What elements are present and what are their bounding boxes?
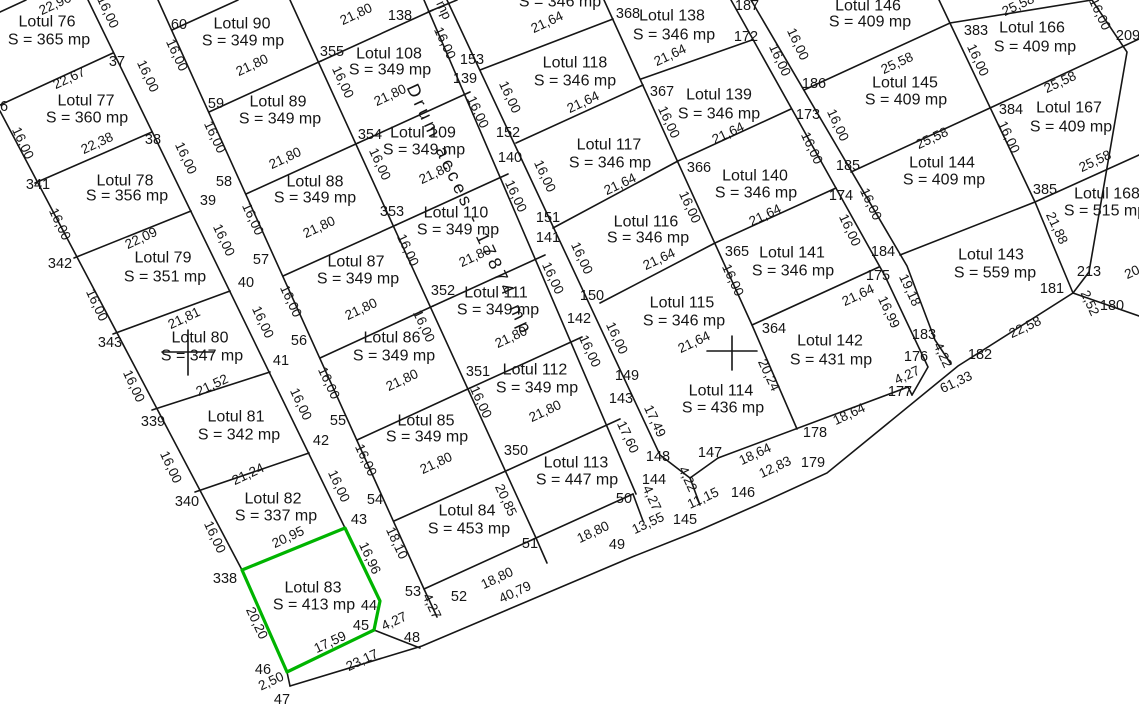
lot-name: Lotul 80 <box>172 330 229 347</box>
lot-area: S = 346 mp <box>752 263 834 280</box>
lot-area: S = 409 mp <box>1030 119 1112 136</box>
edge-length-label: 21,64 <box>747 201 784 229</box>
survey-point-number: 54 <box>367 492 383 508</box>
survey-point-number: 366 <box>687 160 711 176</box>
survey-point-number: 56 <box>291 333 307 349</box>
lot-area: S = 349 mp <box>496 380 578 397</box>
survey-point-number: 174 <box>829 188 853 204</box>
lot-area: S = 365 mp <box>8 32 90 49</box>
survey-point-number: 180 <box>1100 298 1124 314</box>
lot-area: S = 349 mp <box>386 429 468 446</box>
survey-point-number: 209 <box>1116 28 1139 44</box>
survey-point-number: 48 <box>404 630 420 646</box>
edge-length-label: 16,00 <box>325 468 353 505</box>
survey-point-number: 39 <box>200 193 216 209</box>
survey-point-number: 182 <box>968 347 992 363</box>
survey-point-number: 139 <box>453 71 477 87</box>
edge-length-label: 21,80 <box>234 51 271 79</box>
crosshair-icon <box>707 336 757 370</box>
survey-point-number: 47 <box>274 692 290 708</box>
lot-area: S = 349 mp <box>417 222 499 239</box>
lot-name: Lotul 117 <box>577 137 642 154</box>
lot-area: S = 356 mp <box>86 188 168 205</box>
survey-point-number: 364 <box>762 321 786 337</box>
survey-point-number: 185 <box>836 158 860 174</box>
edge-length-label: 21,64 <box>602 170 639 198</box>
edge-length-label: 20,85 <box>492 482 520 519</box>
survey-point-number: 42 <box>313 433 329 449</box>
survey-point-number: 153 <box>460 52 484 68</box>
edge-length-label: 16,00 <box>603 320 631 357</box>
edge-length-label: 16,00 <box>431 25 459 62</box>
survey-point-number: 146 <box>731 485 755 501</box>
lot-name: Lotul 140 <box>722 168 788 185</box>
edge-length-label: 16,00 <box>1086 0 1114 32</box>
edge-length-label: 16,00 <box>719 262 747 299</box>
partial-lot-area-label: S = 346 mp <box>519 0 601 11</box>
lot-area: S = 342 mp <box>198 427 280 444</box>
edge-length-label: 16,00 <box>857 186 885 223</box>
lot-area: S = 349 mp <box>202 33 284 50</box>
lot-name: Lotul 88 <box>287 174 344 191</box>
survey-point-number: 172 <box>734 29 758 45</box>
edge-length-label: 17,49 <box>641 403 669 440</box>
edge-length-label: 16,00 <box>46 206 74 243</box>
edge-length-label: 21,80 <box>301 213 338 241</box>
edge-length-label: 16,00 <box>172 140 200 177</box>
lot-area: S = 447 mp <box>536 472 618 489</box>
lot-area: S = 346 mp <box>678 106 760 123</box>
lot-name: Lotul 109 <box>390 125 456 142</box>
lot-name: Lotul 116 <box>614 214 679 231</box>
lot-name: Lotul 82 <box>245 491 302 508</box>
edge-length-label: 22,09 <box>123 224 160 252</box>
edge-length-label: 21,64 <box>641 245 678 273</box>
edge-length-label: 16,00 <box>277 283 305 320</box>
survey-point-number: 383 <box>964 23 988 39</box>
cadastral-plan: Drum acces - 17874 mp S = 346 mp Lotul 7… <box>0 0 1139 720</box>
lot-area: S = 349 mp <box>239 111 321 128</box>
lot-area: S = 347 mp <box>161 348 243 365</box>
lot-area: S = 515 mp <box>1064 203 1139 220</box>
lot-name: Lotul 89 <box>250 94 307 111</box>
lot-area: S = 346 mp <box>569 155 651 172</box>
edge-length-label: 18,64 <box>831 400 868 428</box>
lot-name: Lotul 145 <box>872 75 938 92</box>
selected-lot-name: Lotul 83 <box>285 580 342 597</box>
survey-point-number: 343 <box>98 335 122 351</box>
lot-name: Lotul 166 <box>999 20 1065 37</box>
lot-area: S = 409 mp <box>829 14 911 31</box>
edge-length-label: 21,64 <box>840 281 877 309</box>
survey-point-number: 342 <box>48 256 72 272</box>
lot-name: Lotul 113 <box>544 455 609 472</box>
edge-length-label: 16,00 <box>210 222 238 259</box>
edge-length-label: 19,18 <box>896 272 924 309</box>
survey-point-number: 55 <box>330 413 346 429</box>
survey-point-number: 365 <box>725 244 749 260</box>
edge-length-label: 23,17 <box>344 646 381 674</box>
survey-point-number: 384 <box>999 102 1023 118</box>
lot-area: S = 409 mp <box>865 92 947 109</box>
edge-length-label: 21,64 <box>710 119 747 147</box>
edge-length-label: 13,55 <box>630 509 667 537</box>
lot-name: Lotul 139 <box>686 87 752 104</box>
edge-length-label: 4,22 <box>676 464 701 494</box>
lot-area: S = 337 mp <box>235 508 317 525</box>
survey-point-number: 350 <box>504 443 528 459</box>
survey-point-number: 45 <box>353 618 369 634</box>
lot-area: S = 409 mp <box>903 172 985 189</box>
edge-length-label: 21,80 <box>527 397 564 425</box>
edge-length-label: 16,00 <box>83 287 111 324</box>
lot-area: S = 346 mp <box>607 230 689 247</box>
lot-area: S = 349 mp <box>353 348 435 365</box>
lot-area: S = 360 mp <box>46 110 128 127</box>
survey-point-number: 179 <box>801 455 825 471</box>
survey-point-number: 367 <box>650 84 674 100</box>
survey-point-number: 181 <box>1040 281 1064 297</box>
survey-point-number: 49 <box>609 537 625 553</box>
survey-point-number: 183 <box>912 327 936 343</box>
lot-name: Lotul 87 <box>328 254 385 271</box>
lot-name: Lotul 79 <box>135 250 192 267</box>
lot-name: Lotul 108 <box>356 46 422 63</box>
survey-point-number: 352 <box>431 283 455 299</box>
lot-name: Lotul 111 <box>464 285 528 302</box>
survey-point-number: 57 <box>253 252 269 268</box>
lot-area: S = 436 mp <box>682 400 764 417</box>
cadastral-plan-svg: Drum acces - 17874 mp S = 346 mp Lotul 7… <box>0 0 1139 720</box>
lot-area: S = 559 mp <box>954 265 1036 282</box>
edge-length-label: 21,80 <box>418 449 455 477</box>
survey-point-number: 353 <box>380 204 404 220</box>
survey-point-number: 368 <box>616 6 640 22</box>
lot-area: S = 349 mp <box>457 302 539 319</box>
lot-area: S = 349 mp <box>274 190 356 207</box>
survey-point-number: 143 <box>609 391 633 407</box>
lot-name: Lotul 141 <box>759 245 825 262</box>
survey-point-number: 186 <box>802 76 826 92</box>
survey-point-number: 43 <box>351 512 367 528</box>
survey-point-number: 142 <box>567 311 591 327</box>
edge-length-label: 20 <box>1122 262 1139 282</box>
edge-length-label: 25,58 <box>914 124 951 152</box>
edge-length-label: 16,00 <box>784 26 812 63</box>
lot-area: S = 346 mp <box>534 73 616 90</box>
edge-length-label: 16,99 <box>875 294 903 331</box>
edge-length-label: 25,58 <box>1077 147 1114 175</box>
survey-point-number: 58 <box>216 174 232 190</box>
survey-point-number: 145 <box>673 512 697 528</box>
edge-length-label: 21,64 <box>529 8 566 36</box>
edge-length-label: 16,00 <box>824 107 852 144</box>
edge-length-label: 21,24 <box>230 460 267 488</box>
survey-point-number: 147 <box>698 445 722 461</box>
edge-length-label: 16,00 <box>201 119 229 156</box>
lot-area: S = 349 mp <box>317 271 399 288</box>
edge-length-label: 16,00 <box>352 442 380 479</box>
edge-length-label: 16,00 <box>120 368 148 405</box>
edge-length-label: 17,60 <box>614 419 642 456</box>
edge-length-label: 16,00 <box>995 119 1023 156</box>
survey-point-number: 176 <box>904 349 928 365</box>
survey-point-number: 340 <box>175 494 199 510</box>
edge-length-label: 21,52 <box>194 371 231 399</box>
edge-length-label: 21,80 <box>384 366 421 394</box>
edge-length-label: 16,00 <box>568 240 596 277</box>
survey-point-number: 184 <box>871 244 895 260</box>
edge-length-label: 21,80 <box>343 295 380 323</box>
edge-length-label: 16,00 <box>496 79 524 116</box>
lot-area: S = 431 mp <box>790 352 872 369</box>
edge-length-label: 16,00 <box>94 0 122 30</box>
lot-name: Lotul 76 <box>19 14 76 31</box>
edge-length-label: 22,38 <box>79 129 116 157</box>
lot-name: Lotul 90 <box>214 16 271 33</box>
lot-area: S = 346 mp <box>633 27 715 44</box>
edge-length-label: 21,80 <box>493 323 530 351</box>
edge-length-label: 16,00 <box>163 37 191 74</box>
edge-length-label: 16,00 <box>676 189 704 226</box>
lot-name: Lotul 146 <box>835 0 901 15</box>
lot-name: Lotul 168 <box>1074 186 1139 203</box>
survey-point-number: 339 <box>141 414 165 430</box>
lot-name: Lotul 86 <box>364 330 421 347</box>
survey-point-number: 41 <box>273 353 289 369</box>
survey-point-number: 213 <box>1077 264 1101 280</box>
edge-length-label: 16,00 <box>502 178 530 215</box>
lot-name: Lotul 114 <box>689 383 754 400</box>
survey-point-number: 351 <box>466 364 490 380</box>
edge-length-label: 16,00 <box>766 42 794 79</box>
lot-area: S = 346 mp <box>643 313 725 330</box>
selected-lot-area: S = 413 mp <box>273 597 355 614</box>
edge-length-label: 61,33 <box>938 368 975 396</box>
edge-length-label: 21,80 <box>267 144 304 172</box>
lot-name: Lotul 138 <box>639 8 705 25</box>
survey-point-number: 355 <box>320 44 344 60</box>
survey-point-number: 341 <box>26 177 50 193</box>
edge-length-label: 25,58 <box>1042 68 1079 96</box>
survey-point-number: 140 <box>498 150 522 166</box>
lot-name: Lotul 115 <box>650 295 715 312</box>
survey-point-number: 40 <box>238 275 254 291</box>
lot-name: Lotul 77 <box>58 93 115 110</box>
lot-area: S = 351 mp <box>124 269 206 286</box>
survey-point-number: 38 <box>145 132 161 148</box>
edge-length-label: 22,67 <box>51 64 88 92</box>
edge-length-label: 16,00 <box>9 125 37 162</box>
lot-area: S = 409 mp <box>994 39 1076 56</box>
edge-length-label: 21,80 <box>338 0 375 28</box>
survey-point-number: 338 <box>213 571 237 587</box>
edge-length-label: 4,27 <box>420 591 445 621</box>
lot-area: S = 349 mp <box>349 62 431 79</box>
survey-point-number: 141 <box>536 230 560 246</box>
survey-point-number: 6 <box>0 99 8 115</box>
lot-name: Lotul 85 <box>398 413 455 430</box>
lot-name: Lotul 110 <box>424 205 489 222</box>
survey-point-number: 187 <box>735 0 759 14</box>
survey-point-number: 148 <box>646 449 670 465</box>
edge-length-label: 16,00 <box>467 384 495 421</box>
edge-length-label: 16,00 <box>315 365 343 402</box>
survey-point-number: 152 <box>496 125 520 141</box>
survey-point-number: 354 <box>358 127 382 143</box>
lot-name: Lotul 167 <box>1036 100 1102 117</box>
lot-area: S = 453 mp <box>428 521 510 538</box>
edge-length-label: 21,80 <box>372 81 409 109</box>
edge-length-label: 16,00 <box>239 201 267 238</box>
edge-length-label: 2,52 <box>1078 288 1103 318</box>
edge-length-label: 16,00 <box>464 94 492 131</box>
survey-point-number: 178 <box>803 425 827 441</box>
survey-point-number: 151 <box>536 210 560 226</box>
lot-area: S = 349 mp <box>383 142 465 159</box>
edge-length-label: 16,00 <box>798 130 826 167</box>
survey-point-number: 385 <box>1033 182 1057 198</box>
survey-point-number: 52 <box>451 589 467 605</box>
survey-point-number: 44 <box>361 598 377 614</box>
lot-name: Lotul 84 <box>439 503 496 520</box>
lot-name: Lotul 118 <box>543 55 608 72</box>
survey-point-number: 150 <box>580 288 604 304</box>
edge-length-label: 18,10 <box>383 525 411 562</box>
survey-point-number: 50 <box>616 491 632 507</box>
survey-point-number: 53 <box>405 584 421 600</box>
edge-length-label: 16,00 <box>249 304 277 341</box>
edge-length-label: mp <box>433 0 455 22</box>
survey-point-number: 138 <box>388 8 412 24</box>
survey-point-number: 59 <box>208 96 224 112</box>
lot-area: S = 346 mp <box>715 185 797 202</box>
lot-name: Lotul 142 <box>797 333 863 350</box>
edge-length-label: 20,24 <box>755 357 783 394</box>
edge-length-label: 4,22 <box>931 340 956 370</box>
survey-point-number: 60 <box>171 17 187 33</box>
lot-name: Lotul 112 <box>503 362 568 379</box>
edge-length-label: 16,00 <box>134 58 162 95</box>
lot-name: Lotul 81 <box>208 409 265 426</box>
lot-name: Lotul 143 <box>958 247 1024 264</box>
lot-name: Lotul 144 <box>909 155 975 172</box>
edge-length-label: 18,80 <box>575 518 612 546</box>
survey-point-number: 51 <box>522 536 538 552</box>
survey-point-number: 149 <box>615 368 639 384</box>
survey-point-number: 37 <box>109 54 125 70</box>
edge-length-label: 22,58 <box>1007 313 1044 341</box>
survey-point-number: 173 <box>796 107 820 123</box>
